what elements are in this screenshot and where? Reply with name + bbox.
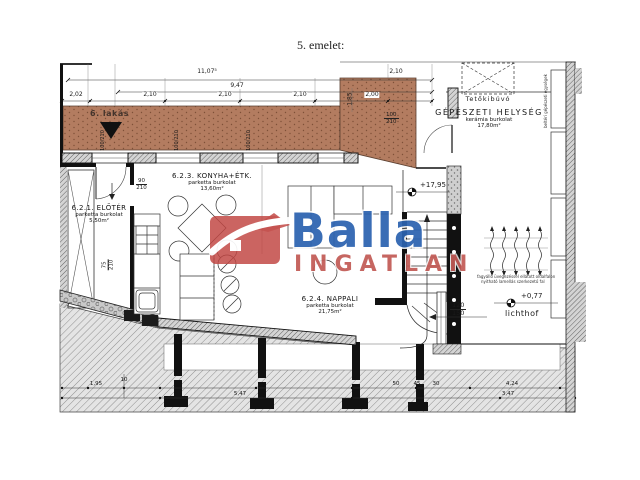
window-marker: 100/210	[175, 130, 180, 151]
dim-top-1: 2,02	[68, 92, 83, 98]
door-height: 210	[136, 185, 147, 191]
window-marker: 100/210	[101, 130, 106, 151]
room-name: GÉPÉSZETI HELYSÉG	[435, 108, 543, 117]
window-height: 210	[100, 130, 106, 140]
window-marker-stack: 100 210	[384, 112, 399, 126]
wall-note-line2: nyitható lamellás szerkezetű fal	[481, 280, 545, 284]
room-label-eloter: 6.2.1. ELŐTÉR parketta burkolat 5,50m²	[72, 204, 127, 224]
apartment-label: 6. lakás	[90, 109, 129, 118]
room-name: 6.2.4. NAPPALI	[302, 295, 359, 303]
dim-bottom-5: 30	[433, 382, 440, 388]
dim-bottom-3: 50	[393, 382, 400, 388]
dim-bottom-4: 45	[414, 382, 421, 388]
dim-top-2: 2,10	[142, 92, 157, 98]
door-width: 90	[136, 178, 147, 185]
floorplan-screen: 5. emelet: 11,07⁵ 9,47 2,02 2,10 2,10 2,…	[0, 0, 640, 480]
roof-hatch-label: Tetőkibúvó	[465, 95, 510, 103]
room-label-konyha: 6.2.3. KONYHA+ÉTK. parketta burkolat 13,…	[172, 172, 252, 192]
dim-bottom-6: 4,24	[506, 382, 518, 388]
door-marker-konyha: 90 210	[136, 178, 147, 192]
window-height: 210	[174, 130, 180, 140]
window-width: 100	[100, 141, 106, 151]
floorplan-drawing	[0, 0, 640, 480]
dim-top-3: 2,10	[217, 92, 232, 98]
level-upper-label: +17,95	[420, 181, 446, 189]
dim-bottom-7: 3,47	[502, 392, 514, 398]
room-name: 6.2.3. KONYHA+ÉTK.	[172, 172, 252, 180]
dim-depth: 1,85	[348, 92, 354, 105]
door-width: 75	[102, 259, 109, 270]
door-height: 210	[109, 260, 115, 271]
lichthof-window-marker: 120 150	[450, 302, 466, 318]
level-markers	[396, 188, 558, 307]
window-height: 210	[246, 130, 252, 140]
dim-subtotal: 9,47	[229, 83, 244, 89]
dim-top-4: 2,10	[292, 92, 307, 98]
dim-bottom-8: 5,47	[234, 392, 246, 398]
window-height: 210	[386, 119, 397, 125]
top-dimension-lines	[60, 62, 576, 112]
window-width: 100	[174, 141, 180, 151]
louvre-wall-symbols	[484, 226, 548, 276]
dim-top-5: 2,00	[364, 92, 379, 98]
lichthof-label: lichthof	[505, 309, 539, 318]
room-area: 21,75m²	[302, 309, 359, 315]
window-marker: 100/210	[247, 130, 252, 151]
window-width: 100	[246, 141, 252, 151]
room-area: 5,50m²	[72, 218, 127, 224]
dim-total: 11,07⁵	[196, 69, 218, 75]
door-marker-eloter: 75 210	[102, 259, 116, 270]
room-area: 17,80m²	[435, 123, 543, 129]
room-label-nappali: 6.2.4. NAPPALI parketta burkolat 21,75m²	[302, 295, 359, 315]
level-lower-label: +0,77	[521, 292, 542, 300]
room-name: 6.2.1. ELŐTÉR	[72, 204, 127, 212]
page-title: 5. emelet:	[297, 38, 344, 53]
room-area: 13,60m²	[172, 186, 252, 192]
dim-bottom-2: 10	[121, 378, 128, 384]
dim-top-right: 2,10	[388, 69, 403, 75]
dim-bottom-1: 1,95	[90, 382, 102, 388]
side-note-vertical: beltéri gépészeti egységek	[544, 74, 548, 128]
room-label-gepeszeti: GÉPÉSZETI HELYSÉG kerámia burkolat 17,80…	[435, 108, 543, 129]
window-height: 150	[452, 310, 464, 317]
window-width: 100	[384, 112, 399, 119]
